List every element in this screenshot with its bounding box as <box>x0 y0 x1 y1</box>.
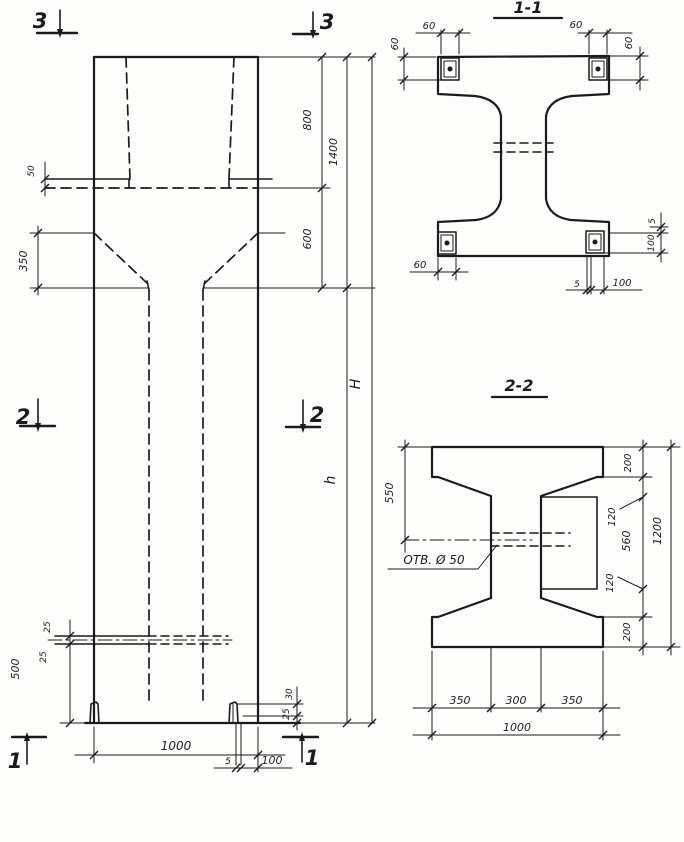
elevation-view: 50 350 800 600 1400 H h 25 25 500 30 25 … <box>8 9 376 773</box>
dim-shaft-height: h <box>323 476 339 485</box>
dim-2-2-bot-left: 350 <box>450 694 471 707</box>
dim-1-1-tl-height: 60 <box>390 38 401 51</box>
dim-1-1-bl-width: 60 <box>414 260 427 271</box>
dim-corner-bot: 25 <box>282 708 292 720</box>
dim-2-2-lower-inner: 120 <box>605 573 616 592</box>
section-2-2-inner-cavity <box>541 497 597 589</box>
elevation-ledge <box>45 179 272 188</box>
section-mark-3-right-label: 3 <box>320 10 335 34</box>
dim-2-2-left: 550 <box>383 483 396 504</box>
dim-ticks-elevation <box>34 53 376 772</box>
elevation-hidden-lines <box>45 57 330 700</box>
dim-overall-height: H <box>348 378 364 389</box>
section-mark-2-right: 2 <box>286 400 324 433</box>
dim-1-1-br-plate-leg: 100 <box>612 278 631 289</box>
section-1-1-title: 1-1 <box>514 0 543 17</box>
section-2-2-title: 2-2 <box>505 376 534 395</box>
dim-taper: 600 <box>301 229 314 250</box>
section-mark-1-right: 1 <box>283 732 319 770</box>
dim-2-2-height: 1200 <box>651 517 664 545</box>
dim-1-1-tr-height: 60 <box>624 37 635 50</box>
dim-hole-below: 25 <box>39 651 49 663</box>
section-mark-1-left-label: 1 <box>8 749 23 773</box>
section-mark-3-left-label: 3 <box>33 9 48 33</box>
section-2-2-hole <box>405 533 570 546</box>
dim-2-2-bot-total: 1000 <box>503 721 531 734</box>
dim-2-2-top-flange: 200 <box>623 453 634 472</box>
section-1-1-corner-angles <box>438 58 607 254</box>
dim-plate-leg: 100 <box>262 754 283 767</box>
hole-callout-label: ОТВ. Ø 50 <box>403 553 465 567</box>
section-2-2-outline <box>432 447 603 647</box>
section-1-1: 1-1 <box>390 0 668 294</box>
section-2-2: 2-2 ОТВ. Ø 50 550 2 <box>383 376 680 740</box>
section-mark-3-right: 3 <box>293 10 334 39</box>
dim-1-1-tr-width: 60 <box>570 20 583 31</box>
technical-drawing: 50 350 800 600 1400 H h 25 25 500 30 25 … <box>0 0 684 842</box>
dim-2-2-bottom-flange: 200 <box>622 622 633 641</box>
section-2-2-hole-callout: ОТВ. Ø 50 <box>388 545 497 569</box>
dim-hole-above: 25 <box>43 621 53 633</box>
dim-2-2-bot-right: 350 <box>562 694 583 707</box>
dim-2-2-upper-inner: 120 <box>607 507 618 526</box>
section-2-2-dim-lines <box>398 440 680 740</box>
dim-plate-t: 5 <box>225 757 231 767</box>
section-1-1-outline <box>438 56 609 256</box>
dim-corner-top: 30 <box>285 688 295 700</box>
dim-ticks-section-2-2 <box>401 443 675 739</box>
dim-1-1-br-plate-t: 5 <box>574 280 580 290</box>
section-mark-2-right-label: 2 <box>310 403 325 427</box>
dim-1-1-tl-width: 60 <box>423 21 436 32</box>
dim-1-1-side-gap: 5 <box>648 218 658 224</box>
section-mark-3-left: 3 <box>33 9 77 38</box>
dim-taper-side: 350 <box>17 251 30 272</box>
elevation-hole <box>48 636 232 644</box>
dim-2-2-middle: 560 <box>620 531 633 552</box>
section-mark-2-left: 2 <box>16 399 55 432</box>
dim-ledge-gap: 50 <box>27 165 37 177</box>
dim-base-width: 1000 <box>161 739 192 753</box>
dim-1-1-side-leg: 100 <box>647 234 657 251</box>
dim-2-2-bot-mid: 300 <box>506 694 527 707</box>
drawing-canvas: 50 350 800 600 1400 H h 25 25 500 30 25 … <box>0 0 684 842</box>
dim-top-cavity: 800 <box>301 110 314 131</box>
dim-hole-to-base: 500 <box>9 659 22 680</box>
dim-upper-total: 1400 <box>327 138 340 166</box>
section-mark-1-left: 1 <box>8 732 46 773</box>
section-mark-1-right-label: 1 <box>305 746 320 770</box>
